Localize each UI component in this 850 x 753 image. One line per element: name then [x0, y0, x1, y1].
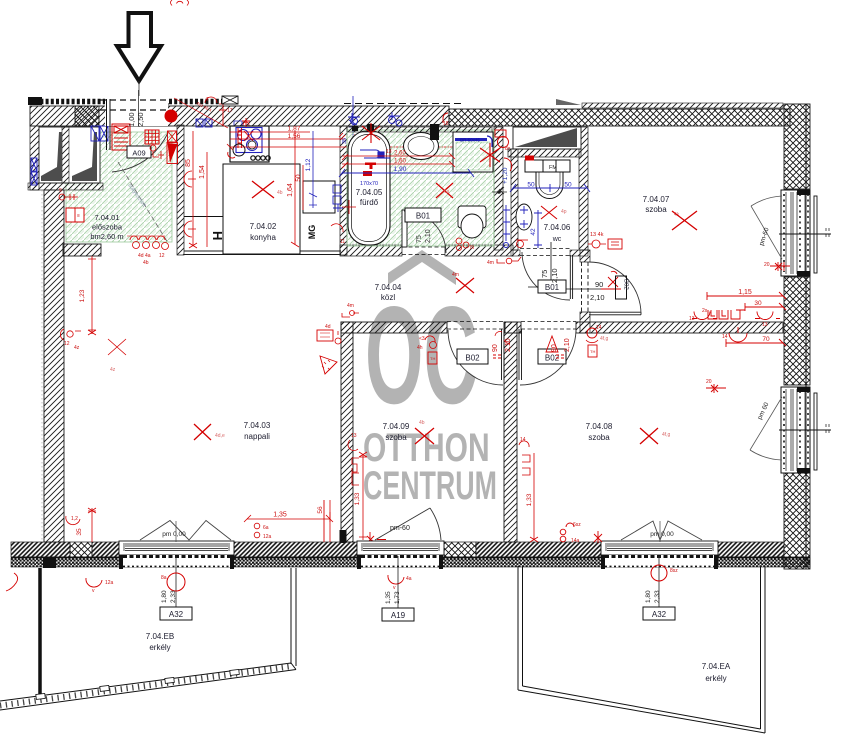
- svg-text:B01: B01: [416, 212, 431, 221]
- svg-text:4f,g: 4f,g: [600, 336, 609, 342]
- svg-text:BR 60x45: BR 60x45: [460, 138, 480, 143]
- svg-text:2x: 2x: [702, 308, 708, 314]
- svg-text:pm-60: pm-60: [390, 525, 410, 532]
- svg-text:9: 9: [59, 188, 62, 194]
- svg-text:4h: 4h: [417, 345, 423, 351]
- svg-text:7.04.07: 7.04.07: [643, 195, 670, 204]
- svg-text:7.04.01: 7.04.01: [94, 213, 119, 222]
- svg-text:bm2,60 m: bm2,60 m: [90, 232, 123, 241]
- svg-text:1,80: 1,80: [645, 590, 652, 603]
- svg-text:1,73: 1,73: [394, 591, 401, 604]
- svg-text:50: 50: [564, 182, 572, 189]
- svg-text:7.04.09: 7.04.09: [383, 422, 410, 431]
- svg-text:170x70: 170x70: [360, 181, 378, 187]
- svg-text:A09: A09: [132, 149, 145, 158]
- svg-text:7.04.04: 7.04.04: [375, 283, 402, 292]
- svg-text:1,35: 1,35: [273, 512, 287, 519]
- svg-text:2,10: 2,10: [564, 338, 571, 352]
- svg-text:+1,20: +1,20: [502, 167, 509, 184]
- svg-text:pm 60: pm 60: [756, 401, 770, 421]
- svg-text:1,87: 1,87: [288, 126, 301, 133]
- svg-text:13: 13: [689, 316, 695, 322]
- svg-text:1,90: 1,90: [394, 166, 407, 173]
- svg-text:pm 0,00: pm 0,00: [650, 531, 674, 538]
- svg-text:B01: B01: [545, 283, 560, 292]
- svg-text:MG: MG: [307, 225, 317, 240]
- svg-text:6a: 6a: [263, 525, 269, 531]
- svg-text:<3: <3: [419, 336, 425, 342]
- svg-text:13: 13: [386, 149, 392, 155]
- svg-text:7.04.06: 7.04.06: [544, 223, 571, 232]
- svg-text:közl: közl: [381, 293, 395, 302]
- svg-text:56: 56: [317, 506, 324, 514]
- svg-text:8a: 8a: [161, 575, 167, 581]
- svg-text:7.04.02: 7.04.02: [250, 222, 277, 231]
- svg-text:11: 11: [340, 239, 345, 245]
- svg-text:1,56: 1,56: [288, 133, 301, 140]
- svg-text:42: 42: [530, 228, 537, 236]
- svg-text:12a: 12a: [105, 580, 114, 586]
- svg-text:7.04.EB: 7.04.EB: [146, 632, 174, 641]
- svg-text:6sz: 6sz: [573, 522, 581, 528]
- svg-text:14: 14: [596, 325, 602, 331]
- svg-text:12: 12: [159, 253, 165, 259]
- svg-text:erkély: erkély: [149, 643, 170, 652]
- svg-text:13: 13: [351, 433, 357, 439]
- svg-text:4d 4a: 4d 4a: [138, 253, 151, 259]
- svg-text:FM: FM: [549, 165, 557, 171]
- svg-text:4p: 4p: [561, 209, 567, 215]
- svg-text:CENTRUM: CENTRUM: [363, 464, 497, 509]
- svg-text:50: 50: [527, 182, 535, 189]
- svg-text:4f,g: 4f,g: [662, 432, 671, 438]
- svg-text:2,10: 2,10: [505, 338, 512, 352]
- svg-text:1,33: 1,33: [354, 492, 361, 505]
- svg-text:4m: 4m: [452, 272, 459, 278]
- svg-text:75: 75: [416, 235, 423, 243]
- svg-text:wc: wc: [552, 236, 562, 243]
- svg-text:30: 30: [754, 300, 762, 307]
- svg-text:1,12: 1,12: [305, 158, 312, 171]
- svg-text:4b: 4b: [419, 420, 425, 426]
- svg-text:erkély: erkély: [705, 674, 726, 683]
- svg-text:A32: A32: [652, 610, 667, 619]
- svg-text:4z: 4z: [110, 367, 116, 373]
- svg-text:18: 18: [443, 121, 449, 127]
- svg-text:4d: 4d: [325, 324, 331, 330]
- svg-text:2,60: 2,60: [394, 151, 406, 157]
- svg-text:előszoba: előszoba: [92, 223, 123, 232]
- svg-text:7.04.08: 7.04.08: [586, 422, 613, 431]
- svg-text:1,60: 1,60: [394, 159, 406, 165]
- svg-text:35: 35: [76, 528, 83, 536]
- svg-text:17: 17: [227, 108, 233, 114]
- svg-text:4m: 4m: [487, 260, 494, 266]
- svg-text:8sz: 8sz: [670, 568, 678, 574]
- svg-text:7.04.EA: 7.04.EA: [702, 662, 731, 671]
- svg-text:6a: 6a: [444, 189, 450, 195]
- svg-text:A32: A32: [169, 610, 184, 619]
- svg-text:35: 35: [342, 138, 348, 144]
- svg-text:konyha: konyha: [250, 233, 276, 242]
- svg-text:szoba: szoba: [645, 205, 667, 214]
- svg-text:2,10: 2,10: [425, 229, 432, 243]
- svg-text:v: v: [393, 585, 396, 591]
- svg-text:A19: A19: [391, 611, 406, 620]
- svg-text:1,23: 1,23: [79, 289, 86, 302]
- svg-text:B02: B02: [623, 279, 629, 290]
- svg-text:4b: 4b: [277, 190, 283, 196]
- svg-text:1,80: 1,80: [161, 590, 168, 603]
- svg-text:2,50: 2,50: [136, 112, 145, 127]
- svg-text:1,54: 1,54: [199, 165, 206, 179]
- svg-text:7.04.05: 7.04.05: [356, 188, 383, 197]
- svg-text:1,00: 1,00: [127, 112, 136, 127]
- svg-text:14a: 14a: [571, 538, 580, 544]
- svg-text:4a: 4a: [406, 576, 412, 582]
- svg-text:20: 20: [706, 379, 712, 385]
- svg-text:90: 90: [492, 344, 499, 352]
- svg-text:1,64: 1,64: [287, 183, 294, 197]
- svg-text:TH: TH: [430, 356, 435, 361]
- svg-text:90: 90: [595, 280, 603, 289]
- svg-text:fürdő: fürdő: [360, 198, 379, 207]
- svg-text:szoba: szoba: [385, 433, 407, 442]
- svg-text:70: 70: [762, 336, 770, 343]
- svg-text:1,2: 1,2: [71, 516, 78, 522]
- svg-text:14: 14: [722, 334, 728, 340]
- svg-text:4b: 4b: [143, 260, 149, 266]
- svg-text:1,35: 1,35: [385, 591, 392, 604]
- svg-text:B02: B02: [465, 354, 480, 363]
- svg-text:1,15: 1,15: [738, 289, 752, 296]
- svg-text:12: 12: [64, 341, 70, 347]
- svg-text:v: v: [92, 588, 95, 594]
- svg-text:14: 14: [520, 437, 526, 443]
- svg-text:2,10: 2,10: [590, 293, 605, 302]
- svg-text:pm 0,00: pm 0,00: [162, 531, 186, 538]
- svg-text:2,33: 2,33: [170, 590, 177, 603]
- svg-text:szoba: szoba: [588, 433, 610, 442]
- svg-text:75: 75: [540, 270, 549, 278]
- svg-text:13 4k: 13 4k: [590, 232, 604, 238]
- svg-text:7.04.03: 7.04.03: [244, 421, 271, 430]
- svg-text:20: 20: [764, 262, 770, 268]
- svg-text:85: 85: [185, 159, 192, 167]
- svg-text:7: 7: [206, 97, 209, 103]
- svg-text:4z: 4z: [74, 345, 80, 351]
- svg-text:≡: ≡: [77, 213, 80, 219]
- svg-text:90: 90: [551, 344, 558, 352]
- svg-text:13: 13: [762, 322, 768, 328]
- svg-text:50: 50: [295, 174, 302, 182]
- svg-text:4m: 4m: [347, 303, 354, 309]
- svg-text:TH: TH: [590, 349, 595, 354]
- svg-text:2,10: 2,10: [550, 268, 559, 283]
- svg-text:nappali: nappali: [244, 432, 270, 441]
- svg-text:4d,e: 4d,e: [215, 433, 225, 439]
- svg-text:1,33: 1,33: [526, 493, 533, 506]
- svg-text:2,33: 2,33: [654, 590, 661, 603]
- svg-text:12a: 12a: [263, 534, 272, 540]
- svg-text:8i: 8i: [470, 245, 474, 251]
- svg-text:H: H: [210, 231, 225, 240]
